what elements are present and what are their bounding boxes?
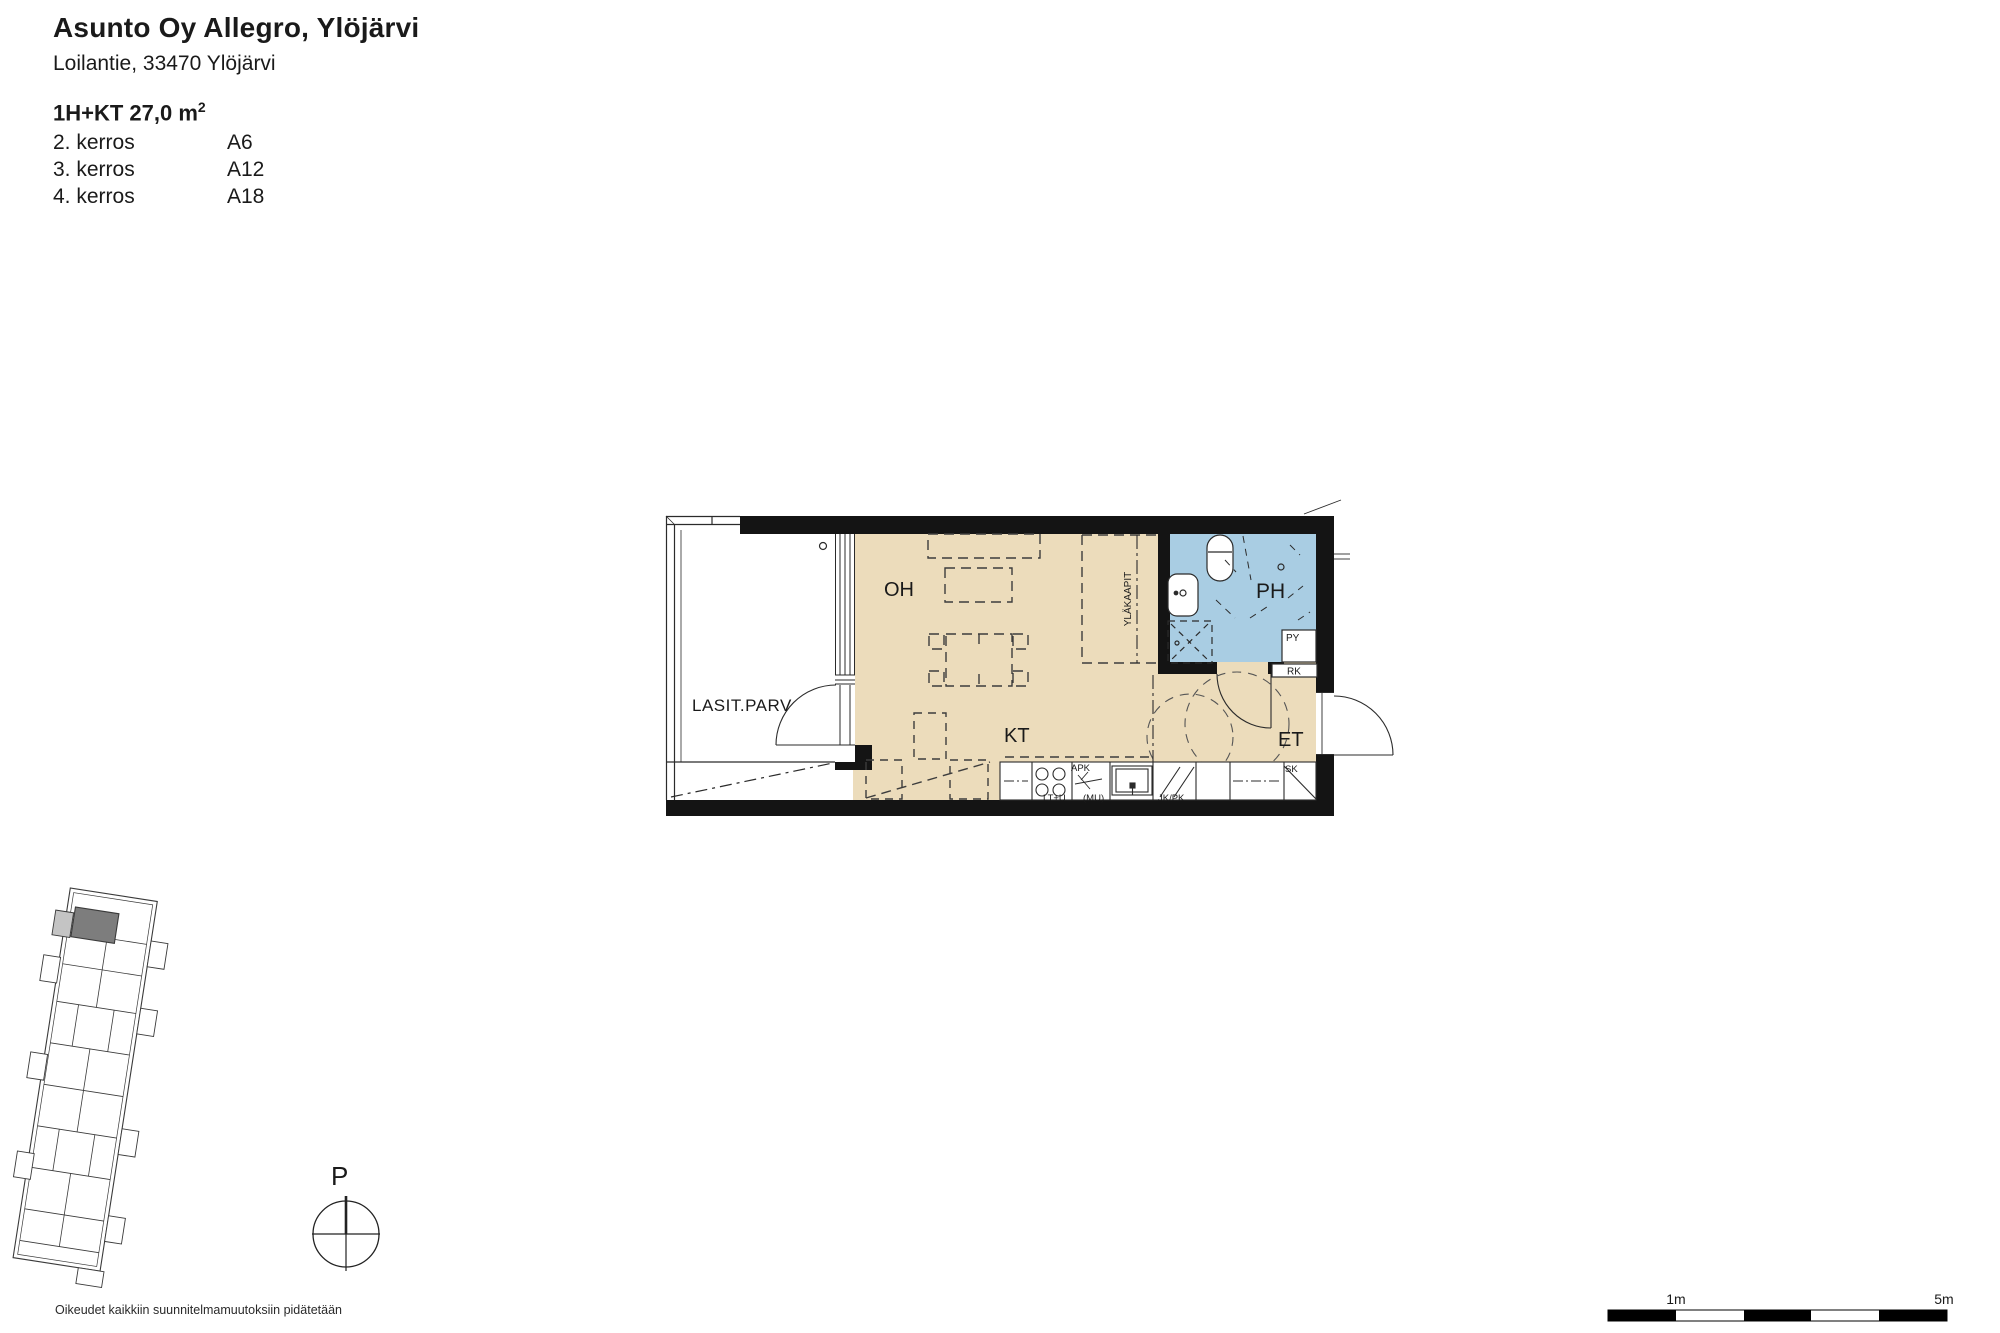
scale-5m-label: 5m [1934, 1291, 1953, 1307]
wall-top [740, 516, 1334, 534]
balcony-open-rail-dashdot [671, 763, 833, 797]
roof-edge-diagonal [1304, 500, 1341, 514]
balcony-drain-icon [820, 543, 827, 550]
sink-faucet-dot [1174, 591, 1178, 595]
floor-plan-page: Asunto Oy Allegro, Ylöjärvi Loilantie, 3… [0, 0, 2000, 1333]
electrical-cabinet-label: RK [1287, 667, 1301, 678]
sink-faucet [1130, 783, 1135, 788]
washer-reserve-label: PY [1286, 633, 1300, 644]
balcony-door-arc [776, 685, 836, 745]
site-plan [0, 886, 174, 1290]
sink-icon [1168, 574, 1198, 616]
fridge-freezer-label: JK/PK [1158, 793, 1185, 804]
scale-segment-black [1744, 1310, 1811, 1321]
wall-right-lower [1316, 755, 1334, 800]
drawing-layer: OH KT PH ET LASIT.PARV YLÄKAAPIT APK LT+… [0, 0, 2000, 1333]
highlighted-balcony [52, 910, 74, 937]
dishwasher-label: APK [1071, 763, 1091, 774]
bathroom-label: PH [1256, 580, 1285, 603]
microwave-label: (MU) [1083, 793, 1104, 804]
balcony-window-wall [835, 534, 855, 762]
balcony-corner-mitre [666, 516, 675, 525]
wall-right-upper [1316, 516, 1334, 692]
living-room-label: OH [884, 579, 914, 601]
scale-segment-black [1608, 1310, 1676, 1321]
north-label: P [331, 1161, 348, 1191]
scale-segment-black [1879, 1310, 1947, 1321]
balcony-door [776, 685, 836, 745]
compass: P [312, 1161, 380, 1271]
scale-bar: 1m 5m [1608, 1291, 1954, 1321]
wall-bottom [666, 800, 1334, 816]
balcony [666, 516, 835, 800]
entrance-label: ET [1278, 729, 1304, 751]
stove-label: LT+U [1043, 793, 1066, 804]
balcony-label: LASIT.PARV [692, 696, 792, 715]
scale-1m-label: 1m [1666, 1291, 1685, 1307]
highlighted-unit [71, 907, 119, 943]
kitchen-label: KT [1004, 725, 1030, 747]
front-door-arc [1334, 696, 1393, 755]
apartment-plan: OH KT PH ET LASIT.PARV YLÄKAAPIT APK LT+… [666, 500, 1393, 816]
toilet-icon [1207, 535, 1233, 581]
wall-bathroom-bottom-left [1158, 662, 1217, 674]
upper-cabinets-label: YLÄKAAPIT [1122, 572, 1134, 626]
cleaning-cabinet-label: SK [1285, 764, 1298, 775]
